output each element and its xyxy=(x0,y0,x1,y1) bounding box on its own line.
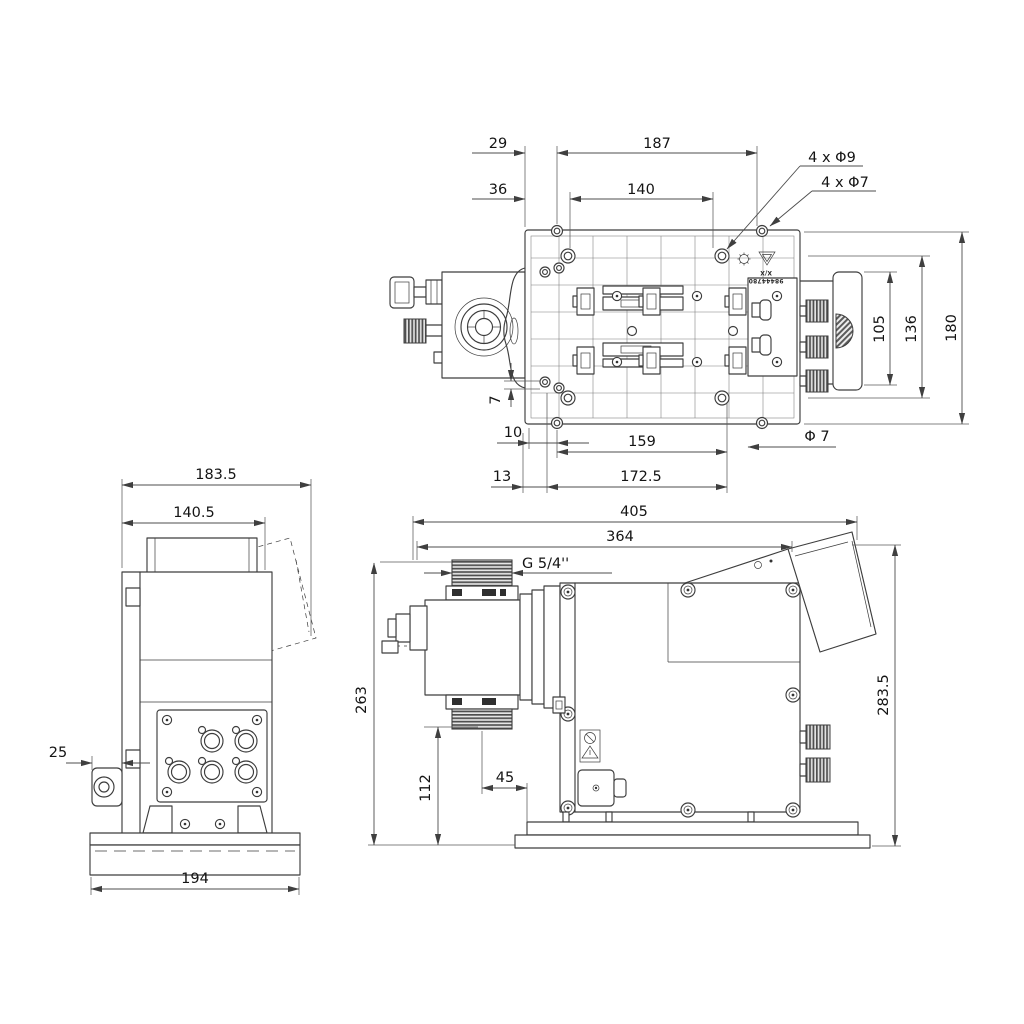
dim-136-value: 136 xyxy=(904,315,920,343)
dim-140-5-value: 140.5 xyxy=(173,505,215,521)
slot-hole xyxy=(540,377,550,387)
dim-29: 29 xyxy=(472,136,525,153)
side-view: 183.5 140.5 25 194 xyxy=(49,467,316,895)
dim-405: 405 xyxy=(413,504,857,522)
dim-140-value: 140 xyxy=(627,182,655,198)
dosing-head-front xyxy=(425,600,520,695)
dim-194-value: 194 xyxy=(181,871,209,887)
housing-screw xyxy=(681,803,695,817)
dim-187: 187 xyxy=(557,136,757,153)
dim-13-value: 13 xyxy=(493,469,511,485)
dim-364-value: 364 xyxy=(606,529,634,545)
dim-180: 180 xyxy=(944,232,962,424)
dim-159-value: 159 xyxy=(628,434,656,450)
dim-25-value: 25 xyxy=(49,745,67,761)
callout-4xd7-label: 4 x Φ7 xyxy=(821,175,869,191)
mounting-hole-d7 xyxy=(757,418,768,429)
dim-283-5: 283.5 xyxy=(876,545,895,846)
dim-283-5-value: 283.5 xyxy=(876,674,892,716)
dosing-pump-dimension-drawing: X/X 98444780 xyxy=(0,0,1024,1024)
housing-screw xyxy=(786,583,800,597)
plate-screw xyxy=(612,291,621,300)
dim-13: 13 xyxy=(491,469,547,487)
mounting-hole-d9 xyxy=(715,249,729,263)
dim-140: 140 xyxy=(570,182,713,199)
dosing-head-top xyxy=(442,272,525,378)
wall-mount-lug xyxy=(92,768,122,806)
signal-plugs-top xyxy=(800,300,828,392)
base-plate-front xyxy=(515,812,870,848)
dim-45: 45 xyxy=(482,770,527,788)
panel-screw xyxy=(252,715,261,724)
mounting-hole-d9 xyxy=(715,391,729,405)
dim-36-value: 36 xyxy=(489,182,507,198)
dim-105: 105 xyxy=(872,272,890,385)
discharge-thread xyxy=(452,560,512,586)
connector-panel xyxy=(157,710,267,802)
dim-172-5: 172.5 xyxy=(547,469,727,487)
callout-d7-label: Φ 7 xyxy=(804,429,829,445)
mounting-hole-d9 xyxy=(561,249,575,263)
dim-112: 112 xyxy=(418,727,438,845)
dim-105-value: 105 xyxy=(872,315,888,343)
plate-screw xyxy=(612,357,621,366)
dim-29-value: 29 xyxy=(489,136,507,152)
warning-label xyxy=(580,730,600,762)
dim-140-5: 140.5 xyxy=(122,505,265,523)
dim-36: 36 xyxy=(472,182,525,199)
cable-gland xyxy=(390,277,414,308)
plate-screw xyxy=(772,291,781,300)
slot-hole xyxy=(554,263,564,273)
signal-plugs-front xyxy=(800,725,830,782)
dim-405-value: 405 xyxy=(620,504,648,520)
dim-180-value: 180 xyxy=(944,314,960,342)
dim-112-value: 112 xyxy=(418,774,434,802)
plate-screw xyxy=(692,291,701,300)
dim-263: 263 xyxy=(354,563,374,845)
panel-screw xyxy=(162,787,171,796)
dim-183-5: 183.5 xyxy=(122,467,311,485)
base-plate-side xyxy=(90,833,300,845)
front-view: 405 364 G 5/4'' 263 112 45 xyxy=(354,504,901,848)
mounting-hole-d7 xyxy=(757,226,768,237)
housing-screw xyxy=(786,803,800,817)
callout-d7: Φ 7 xyxy=(748,429,836,447)
control-cube-top xyxy=(800,272,862,392)
slot-hole xyxy=(554,383,564,393)
top-view: X/X 98444780 xyxy=(390,136,969,493)
dim-10: 10 xyxy=(497,425,589,443)
housing-screw xyxy=(681,583,695,597)
plate-screw xyxy=(692,357,701,366)
mounting-hole-d7 xyxy=(552,226,563,237)
suction-thread xyxy=(452,709,512,729)
vent-valve xyxy=(410,606,427,650)
dim-172-5-value: 172.5 xyxy=(620,469,662,485)
dim-45-value: 45 xyxy=(496,770,514,786)
panel-screw xyxy=(162,715,171,724)
dim-183-5-value: 183.5 xyxy=(195,467,237,483)
callout-4xd9-label: 4 x Φ9 xyxy=(808,150,856,166)
base-screw xyxy=(180,819,189,828)
housing-screw xyxy=(561,585,575,599)
plate-screw xyxy=(772,357,781,366)
part-marking-line1: X/X xyxy=(760,269,772,276)
panel-screw xyxy=(252,787,261,796)
dim-10-value: 10 xyxy=(504,425,522,441)
dim-263-value: 263 xyxy=(354,686,370,714)
slot-hole xyxy=(540,267,550,277)
dim-136: 136 xyxy=(904,256,922,398)
bleed-valve-knob xyxy=(404,319,426,343)
technical-drawing-page: X/X 98444780 xyxy=(0,0,1024,1024)
dim-7-value: 7 xyxy=(488,395,504,404)
dim-364: 364 xyxy=(417,529,792,547)
housing-screw xyxy=(786,688,800,702)
dim-187-value: 187 xyxy=(643,136,671,152)
base-screw xyxy=(215,819,224,828)
front-view-machine xyxy=(382,532,876,848)
mounting-hole-d7 xyxy=(552,418,563,429)
top-view-machine: X/X 98444780 xyxy=(390,226,862,429)
part-marking-line2: 98444780 xyxy=(749,277,784,284)
mounting-hole-d9 xyxy=(561,391,575,405)
side-view-machine xyxy=(90,538,316,875)
thread-label: G 5/4'' xyxy=(522,556,569,572)
